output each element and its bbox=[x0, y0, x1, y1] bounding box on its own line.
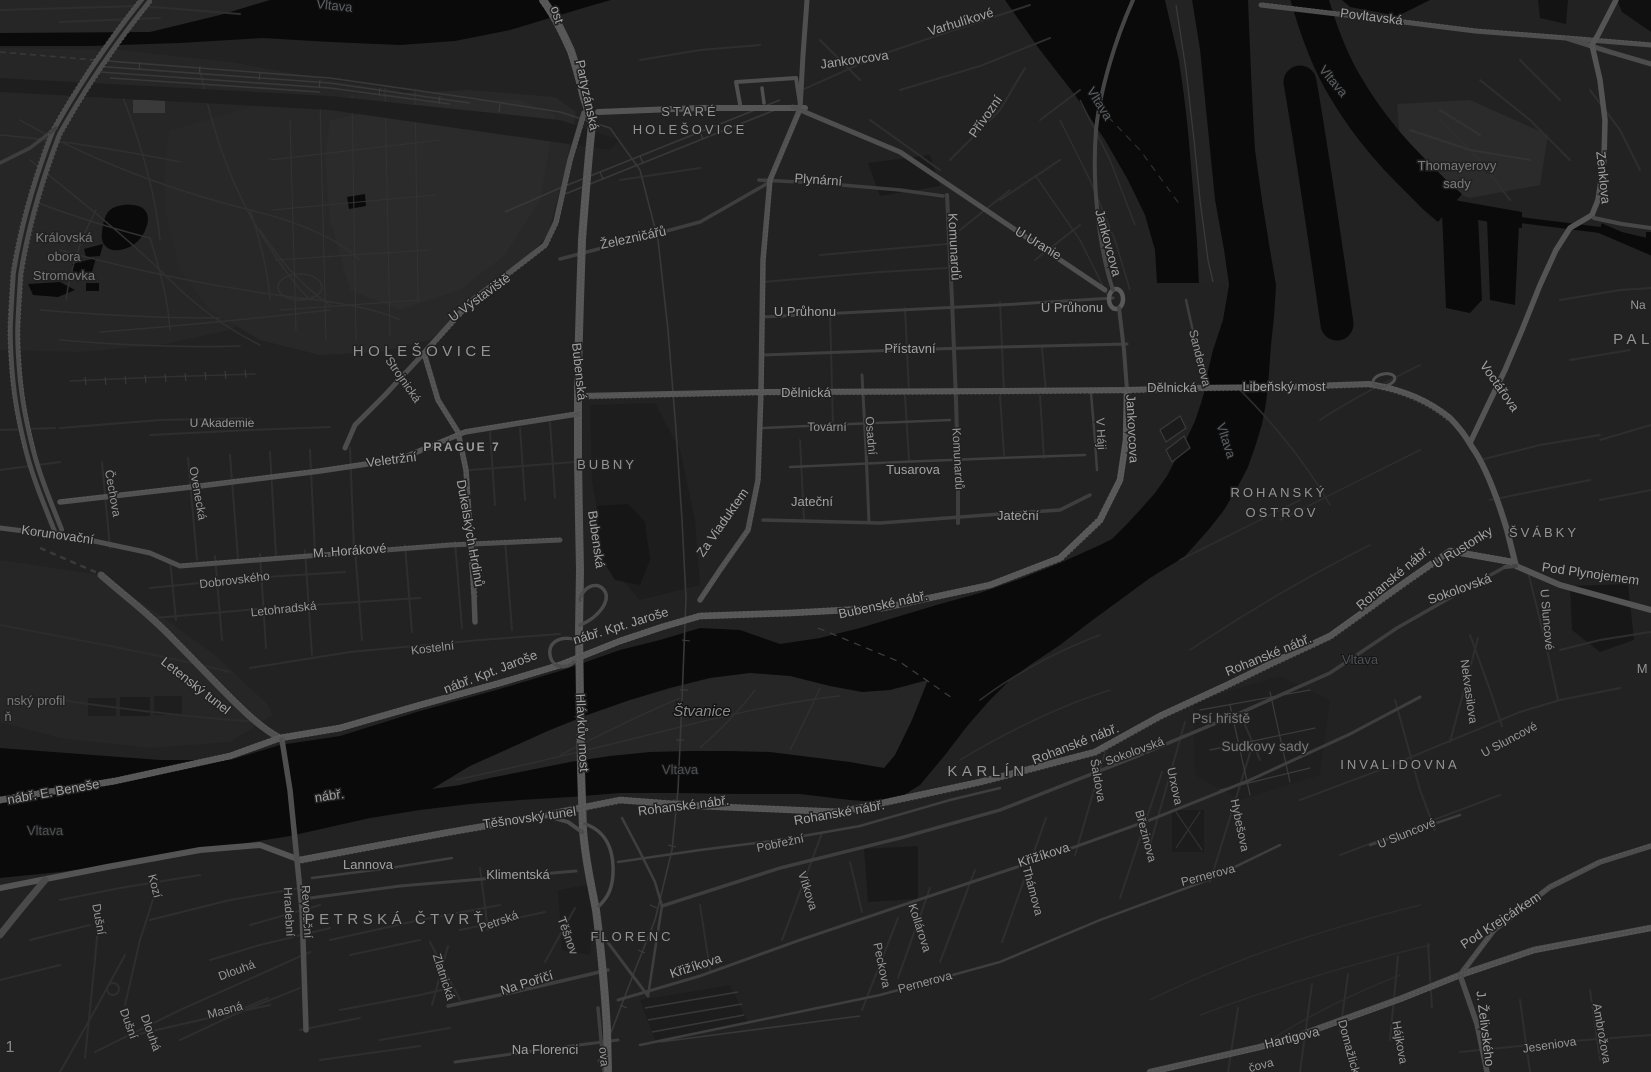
svg-text:PRAGUE 7: PRAGUE 7 bbox=[423, 440, 500, 454]
svg-text:PALM: PALM bbox=[1613, 331, 1651, 348]
svg-text:STARÉ: STARÉ bbox=[661, 104, 718, 119]
svg-text:ň: ň bbox=[4, 709, 11, 724]
svg-text:Na: Na bbox=[1630, 298, 1646, 312]
svg-text:Dělnická: Dělnická bbox=[1147, 380, 1198, 395]
svg-text:INVALIDOVNA: INVALIDOVNA bbox=[1340, 757, 1459, 772]
svg-text:Tovární: Tovární bbox=[807, 420, 847, 434]
svg-text:Vltava: Vltava bbox=[27, 823, 64, 838]
svg-text:FLORENC: FLORENC bbox=[590, 929, 673, 944]
svg-text:obora: obora bbox=[47, 249, 81, 264]
svg-text:Královská: Královská bbox=[35, 230, 93, 245]
svg-text:Stromovka: Stromovka bbox=[33, 268, 96, 283]
svg-text:Přístavní: Přístavní bbox=[884, 341, 936, 356]
svg-text:Dělnická: Dělnická bbox=[781, 385, 832, 400]
svg-text:U Akademie: U Akademie bbox=[190, 416, 255, 430]
svg-text:OSTROV: OSTROV bbox=[1246, 505, 1319, 520]
svg-text:U Průhonu: U Průhonu bbox=[1041, 300, 1103, 315]
svg-text:Štvanice: Štvanice bbox=[673, 703, 731, 720]
svg-text:Libeňský most: Libeňský most bbox=[1242, 379, 1325, 394]
svg-text:ova: ova bbox=[596, 1046, 612, 1067]
svg-text:nský profil: nský profil bbox=[7, 693, 66, 708]
svg-text:Klimentská: Klimentská bbox=[486, 867, 550, 882]
svg-text:BUBNY: BUBNY bbox=[577, 457, 637, 472]
svg-text:Lannova: Lannova bbox=[343, 857, 394, 872]
svg-text:V Háji: V Háji bbox=[1093, 417, 1109, 450]
svg-text:Psí hřiště: Psí hřiště bbox=[1192, 710, 1251, 726]
svg-text:ŠVÁBKY: ŠVÁBKY bbox=[1509, 525, 1579, 540]
svg-text:1: 1 bbox=[6, 1039, 15, 1056]
svg-text:Vltava: Vltava bbox=[1342, 652, 1379, 667]
svg-text:U Průhonu: U Průhonu bbox=[774, 304, 836, 319]
svg-text:ROHANSKÝ: ROHANSKÝ bbox=[1231, 485, 1328, 500]
svg-text:Jateční: Jateční bbox=[791, 494, 833, 509]
svg-text:Vltava: Vltava bbox=[662, 762, 699, 777]
svg-text:Tusarova: Tusarova bbox=[886, 462, 940, 477]
svg-text:Thomayerovy: Thomayerovy bbox=[1418, 158, 1497, 173]
svg-text:PETRSKÁ ČTVRŤ: PETRSKÁ ČTVRŤ bbox=[305, 911, 488, 928]
svg-text:HOLEŠOVICE: HOLEŠOVICE bbox=[633, 122, 748, 137]
svg-text:Sudkovy sady: Sudkovy sady bbox=[1221, 738, 1308, 754]
svg-text:Jateční: Jateční bbox=[997, 508, 1039, 523]
svg-text:Hradební: Hradební bbox=[281, 887, 298, 938]
svg-text:Na Florenci: Na Florenci bbox=[512, 1042, 579, 1057]
svg-text:MI: MI bbox=[1637, 661, 1651, 676]
svg-text:sady: sady bbox=[1443, 176, 1471, 191]
svg-text:KARLÍN: KARLÍN bbox=[947, 763, 1028, 780]
svg-text:HOLEŠOVICE: HOLEŠOVICE bbox=[353, 343, 496, 360]
